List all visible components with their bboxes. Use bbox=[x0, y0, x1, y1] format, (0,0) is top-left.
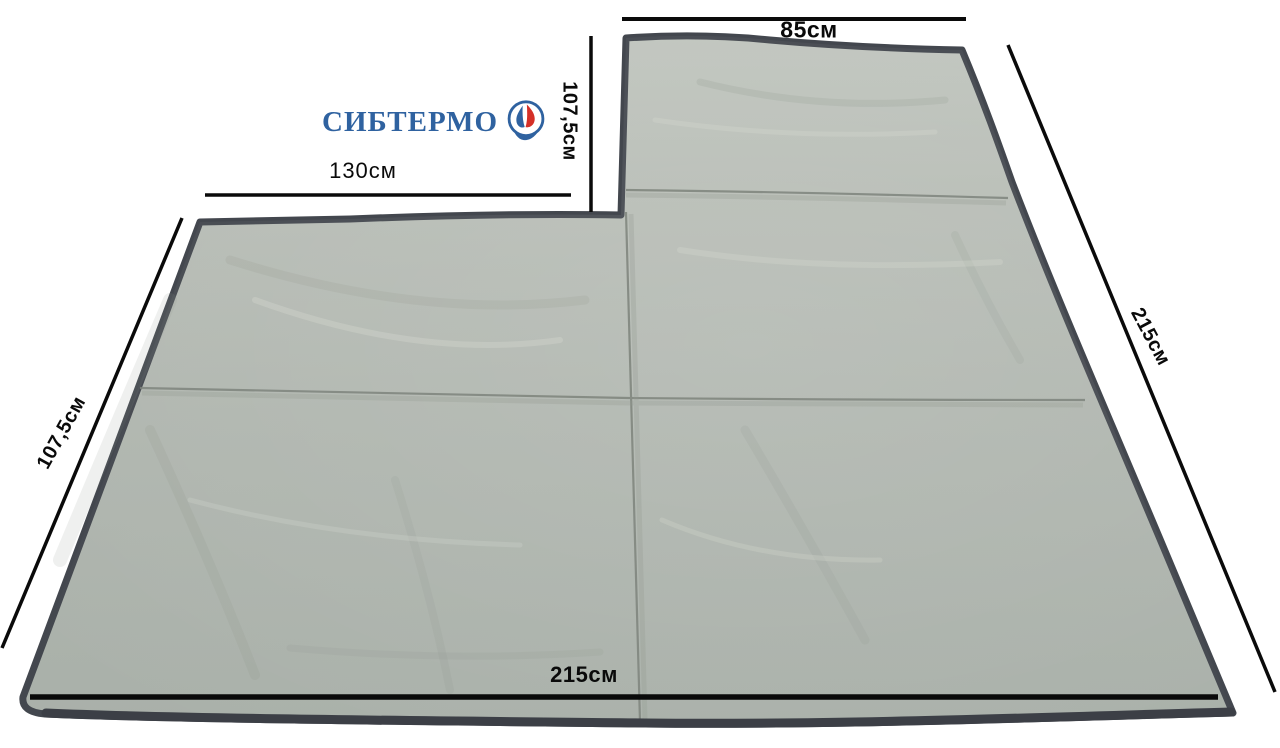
sibtermo-flame-drop-hand-icon bbox=[506, 98, 546, 146]
mat-sheen bbox=[23, 36, 1233, 724]
dim-label-top-width: 85см bbox=[780, 17, 837, 44]
dim-label-bottom-width: 215см bbox=[550, 662, 618, 688]
dim-label-notch-width: 130см bbox=[329, 158, 397, 184]
mat-photo bbox=[23, 36, 1233, 724]
product-dimension-diagram: 85см 107,5см 130см 215см 107,5см 215см С… bbox=[0, 0, 1280, 748]
brand-logo-text: СИБТЕРМО bbox=[322, 108, 498, 137]
brand-logo: СИБТЕРМО bbox=[322, 98, 546, 146]
dim-label-top-section-height: 107,5см bbox=[558, 81, 581, 160]
mat-photo-scene bbox=[0, 0, 1280, 748]
